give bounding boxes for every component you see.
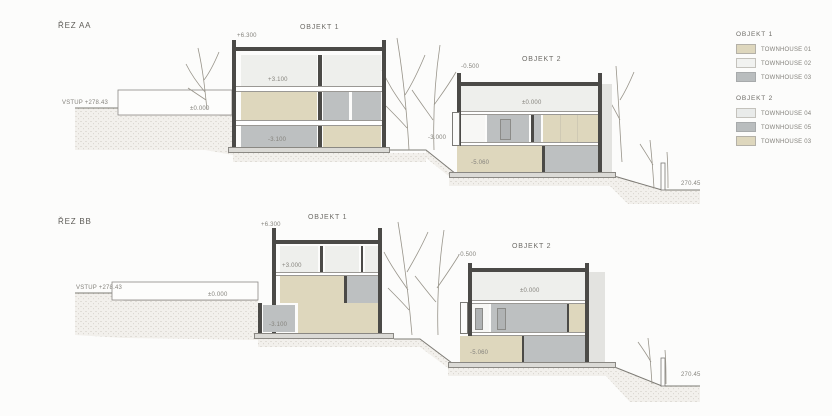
entry-shaft bbox=[452, 112, 460, 146]
section-drawing-sheet: ŘEZ AA VSTUP +278.43 ±0.000 270.45 OBJEK… bbox=[0, 0, 832, 416]
entry-level-label-aa: VSTUP +278.43 bbox=[62, 100, 108, 106]
terrace-level-label-aa: ±0.000 bbox=[190, 106, 210, 112]
side-level-label-aa-o2: -3.000 bbox=[428, 135, 446, 141]
section-label-bb: ŘEZ BB bbox=[58, 218, 92, 226]
grade-level-label-bb: 270.45 bbox=[681, 372, 701, 378]
window-mullion bbox=[577, 115, 578, 142]
stair-hall bbox=[461, 115, 485, 142]
door bbox=[497, 308, 506, 330]
wall bbox=[318, 126, 322, 147]
room-townhouse-03 bbox=[352, 92, 381, 120]
room-townhouse-05 bbox=[545, 146, 598, 172]
retaining-post-aa bbox=[661, 163, 665, 190]
foundation-slab bbox=[228, 147, 390, 153]
level-label: +3.000 bbox=[282, 263, 302, 269]
level-label: -5.060 bbox=[471, 160, 489, 166]
building-title-aa-o2: OBJEKT 2 bbox=[522, 56, 561, 63]
building-title-bb-o2: OBJEKT 2 bbox=[512, 243, 551, 250]
side-wall-band bbox=[602, 84, 612, 172]
wall bbox=[320, 246, 323, 272]
room-townhouse-03 bbox=[323, 92, 349, 120]
room-townhouse-01 bbox=[569, 304, 585, 332]
wall bbox=[232, 40, 236, 147]
level-label: ±0.000 bbox=[520, 288, 540, 294]
wall bbox=[318, 92, 322, 120]
room-townhouse-03 bbox=[347, 276, 378, 303]
wall bbox=[258, 303, 262, 333]
level-label: +3.100 bbox=[268, 77, 288, 83]
legend-label: TOWNHOUSE 03 bbox=[761, 75, 811, 81]
room-townhouse-01 bbox=[241, 92, 317, 120]
room-townhouse-04 bbox=[472, 272, 585, 300]
legend-label: TOWNHOUSE 04 bbox=[761, 111, 811, 117]
entry-level-label-bb: VSTUP +278.43 bbox=[76, 285, 122, 291]
room-townhouse-04 bbox=[461, 86, 598, 111]
legend-label: TOWNHOUSE 01 bbox=[761, 47, 811, 53]
foundation-slab bbox=[254, 333, 394, 339]
parapet-level-label-aa-o2: -0.500 bbox=[461, 64, 479, 70]
wall bbox=[382, 40, 386, 147]
level-label: -3.100 bbox=[269, 322, 287, 328]
roof-level-label-aa-o1: +6.300 bbox=[237, 33, 257, 39]
roof-slab bbox=[236, 47, 382, 51]
level-label: -5.060 bbox=[470, 350, 488, 356]
stair-room-townhouse-05 bbox=[524, 336, 585, 362]
level-label: ±0.000 bbox=[522, 100, 542, 106]
stair-room-townhouse-01 bbox=[298, 303, 378, 333]
entry-shaft bbox=[460, 302, 468, 334]
room-townhouse-02 bbox=[323, 55, 381, 86]
room-townhouse-01 bbox=[457, 146, 542, 172]
legend-swatch bbox=[736, 108, 756, 118]
building-title-aa-o1: OBJEKT 1 bbox=[300, 24, 339, 31]
legend-swatch bbox=[736, 44, 756, 54]
parapet-level-label-bb-o2: -0.500 bbox=[458, 252, 476, 258]
legend-swatch bbox=[736, 136, 756, 146]
wall bbox=[378, 228, 382, 333]
terrace-level-label-bb: ±0.000 bbox=[208, 292, 228, 298]
side-wall-band bbox=[589, 272, 605, 362]
terrain-and-trees bbox=[0, 0, 832, 416]
terrace-wall-aa bbox=[118, 90, 232, 115]
building-title-bb-o1: OBJEKT 1 bbox=[308, 214, 347, 221]
level-label: -3.100 bbox=[268, 137, 286, 143]
terrace-wall-bb bbox=[112, 282, 258, 300]
legend-label: TOWNHOUSE 03 bbox=[761, 139, 811, 145]
room-townhouse-02 bbox=[365, 246, 378, 272]
window-mullion bbox=[560, 115, 561, 142]
legend-swatch bbox=[736, 72, 756, 82]
room-townhouse-02 bbox=[325, 246, 359, 272]
room-townhouse-01 bbox=[460, 336, 522, 362]
section-label-aa: ŘEZ AA bbox=[58, 22, 91, 30]
door bbox=[500, 119, 511, 140]
ground-bb bbox=[75, 282, 700, 402]
grade-level-label-aa: 270.45 bbox=[681, 181, 701, 187]
legend-swatch bbox=[736, 122, 756, 132]
legend-swatch bbox=[736, 58, 756, 68]
room-townhouse-01 bbox=[323, 126, 381, 147]
wall bbox=[361, 246, 363, 272]
legend-group-title: OBJEKT 2 bbox=[736, 96, 773, 103]
legend-label: TOWNHOUSE 02 bbox=[761, 61, 811, 67]
door bbox=[475, 308, 483, 330]
room-townhouse-01 bbox=[543, 115, 598, 142]
foundation-slab bbox=[449, 172, 616, 178]
wall bbox=[318, 55, 322, 86]
legend-label: TOWNHOUSE 05 bbox=[761, 125, 811, 131]
room-townhouse-01 bbox=[280, 276, 344, 303]
retaining-post-bb bbox=[661, 358, 665, 386]
legend-group-title: OBJEKT 1 bbox=[736, 32, 773, 39]
foundation-slab bbox=[448, 362, 616, 368]
room-townhouse-05 bbox=[534, 115, 541, 142]
roof-level-label-bb-o1: +6.300 bbox=[261, 222, 281, 228]
roof-slab bbox=[276, 240, 378, 244]
